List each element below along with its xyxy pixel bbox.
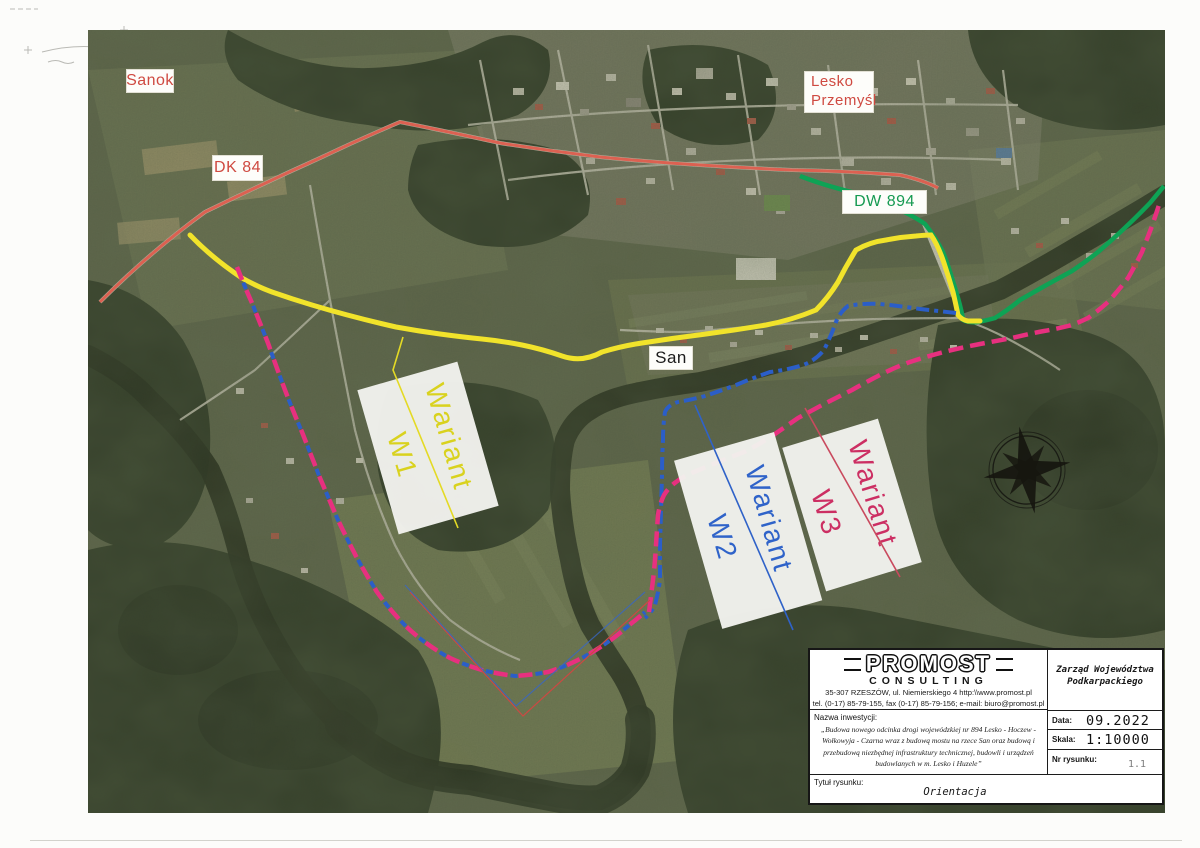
scale-label: Skala: xyxy=(1052,735,1076,744)
drawing-number-label: Nr rysunku: xyxy=(1052,755,1097,764)
company-name: PROMOST xyxy=(866,653,991,675)
promost-logo: PROMOST xyxy=(810,653,1047,675)
investment-cell: Nazwa inwestycji: „Budowa nowego odcinka… xyxy=(810,709,1048,774)
company-address: 35-307 RZESZÓW, ul. Niemierskiego 4 http… xyxy=(810,688,1047,709)
drawing-number-value: 1.1 xyxy=(1128,759,1146,770)
paper-scan-line xyxy=(30,840,1182,841)
map-label-sanok: Sanok xyxy=(126,69,174,93)
date-cell: Data: 09.2022 xyxy=(1048,710,1162,729)
date-label: Data: xyxy=(1052,716,1072,725)
address-line2: tel. (0-17) 85-79-155, fax (0-17) 85-79-… xyxy=(810,699,1047,710)
drawing-title-value: Orientacja xyxy=(870,786,1040,798)
map-label-lesko-przemysl: Lesko Przemyśl xyxy=(804,71,874,113)
address-line1: 35-307 RZESZÓW, ul. Niemierskiego 4 http… xyxy=(810,688,1047,699)
investment-name: „Budowa nowego odcinka drogi wojewódzkie… xyxy=(819,724,1038,769)
company-cell: PROMOST CONSULTING 35-307 RZESZÓW, ul. N… xyxy=(810,650,1048,709)
map-label-san-river: San xyxy=(649,346,693,370)
title-block: PROMOST CONSULTING 35-307 RZESZÓW, ul. N… xyxy=(808,648,1164,805)
lesko-line2: Przemyśl xyxy=(811,92,877,111)
drawing-number-cell: Nr rysunku: 1.1 xyxy=(1048,749,1162,774)
lesko-line1: Lesko xyxy=(811,73,854,92)
map-label-dw894: DW 894 xyxy=(842,190,927,214)
scanned-sheet: Wariant W1 Wariant W2 Wariant W3 xyxy=(0,0,1200,848)
company-subtitle: CONSULTING xyxy=(810,675,1047,687)
date-value: 09.2022 xyxy=(1086,713,1150,729)
map-label-dk84: DK 84 xyxy=(212,155,263,181)
logo-bar-right-icon xyxy=(996,658,1013,671)
scale-cell: Skala: 1:10000 xyxy=(1048,729,1162,749)
logo-bar-left-icon xyxy=(844,658,861,671)
client-name: Zarząd Województwa Podkarpackiego xyxy=(1048,665,1162,688)
client-cell: Zarząd Województwa Podkarpackiego xyxy=(1048,650,1162,710)
investment-label: Nazwa inwestycji: xyxy=(814,713,877,722)
drawing-title-label: Tytuł rysunku: xyxy=(814,778,863,787)
drawing-title-cell: Tytuł rysunku: Orientacja xyxy=(810,774,1162,803)
scale-value: 1:10000 xyxy=(1086,732,1150,748)
